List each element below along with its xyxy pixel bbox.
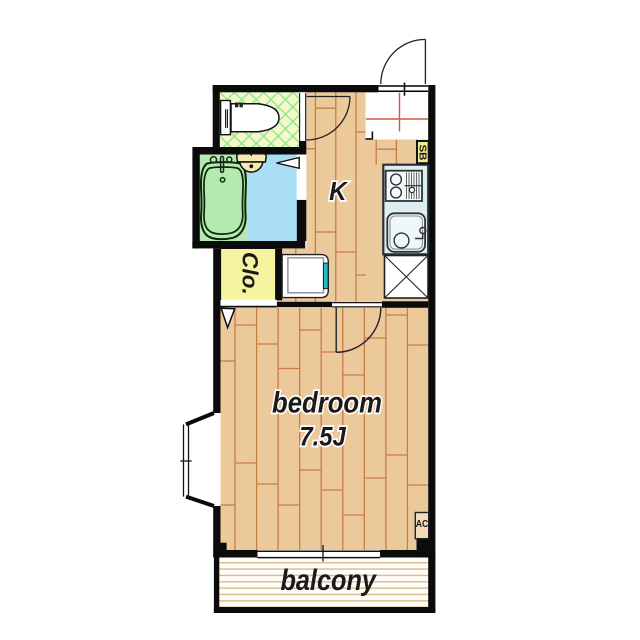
svg-text:7.5J: 7.5J <box>299 421 347 451</box>
svg-text:balcony: balcony <box>280 564 377 597</box>
svg-text:AC: AC <box>416 519 429 530</box>
svg-text:SB: SB <box>417 145 429 161</box>
svg-text:bedroom: bedroom <box>272 386 382 419</box>
svg-text:K: K <box>329 176 349 206</box>
svg-text:Clo.: Clo. <box>237 252 262 295</box>
